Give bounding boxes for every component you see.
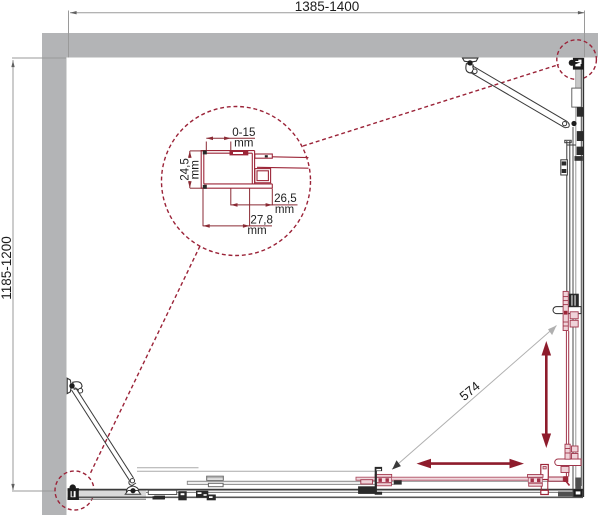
svg-text:mm: mm xyxy=(247,224,266,237)
svg-text:mm: mm xyxy=(275,203,294,216)
svg-text:1185-1200: 1185-1200 xyxy=(0,236,14,300)
svg-text:mm: mm xyxy=(189,160,202,179)
svg-text:1385-1400: 1385-1400 xyxy=(295,0,360,14)
svg-text:mm: mm xyxy=(234,137,253,150)
svg-text:574: 574 xyxy=(457,378,483,403)
